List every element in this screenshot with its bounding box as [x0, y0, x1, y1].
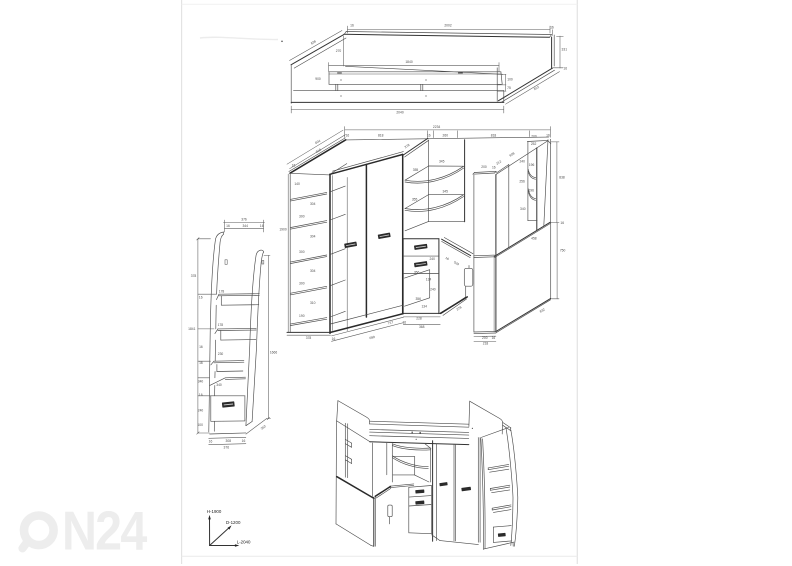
svg-text:378: 378 — [191, 274, 197, 278]
svg-text:100: 100 — [507, 78, 513, 82]
svg-text:838: 838 — [559, 176, 565, 180]
svg-text:1666: 1666 — [270, 350, 278, 354]
svg-text:16: 16 — [402, 320, 406, 324]
svg-text:376: 376 — [224, 445, 230, 449]
svg-text:240: 240 — [519, 159, 525, 163]
svg-text:256: 256 — [519, 180, 525, 184]
svg-text:100: 100 — [197, 423, 203, 427]
svg-text:178: 178 — [219, 289, 225, 293]
svg-text:H-1900: H-1900 — [207, 509, 222, 514]
svg-text:356: 356 — [415, 297, 421, 301]
svg-text:16: 16 — [350, 23, 354, 27]
svg-text:1840: 1840 — [405, 60, 413, 64]
svg-text:344: 344 — [242, 224, 248, 228]
svg-text:304: 304 — [310, 234, 316, 238]
svg-text:378: 378 — [306, 336, 312, 340]
svg-text:228: 228 — [416, 317, 422, 321]
svg-text:218: 218 — [483, 342, 489, 346]
svg-text:196: 196 — [528, 189, 534, 193]
svg-text:818: 818 — [491, 133, 497, 137]
svg-text:16: 16 — [209, 439, 213, 443]
svg-text:750: 750 — [560, 249, 566, 253]
svg-text:190: 190 — [299, 314, 305, 318]
svg-text:1900: 1900 — [279, 227, 287, 231]
svg-text:300: 300 — [299, 281, 305, 285]
svg-text:331: 331 — [562, 48, 568, 52]
svg-text:308: 308 — [226, 439, 232, 443]
svg-text:252: 252 — [531, 142, 537, 146]
svg-text:D-1200: D-1200 — [226, 520, 241, 525]
svg-text:140: 140 — [294, 182, 300, 186]
svg-text:16: 16 — [560, 221, 564, 225]
svg-text:200: 200 — [531, 135, 537, 139]
svg-text:134: 134 — [421, 304, 427, 308]
svg-text:178: 178 — [218, 323, 224, 327]
svg-text:16: 16 — [199, 345, 203, 349]
svg-text:75: 75 — [507, 86, 511, 90]
svg-text:240: 240 — [430, 288, 436, 292]
svg-text:300: 300 — [299, 250, 305, 254]
svg-text:260: 260 — [443, 133, 449, 137]
svg-text:310: 310 — [310, 301, 316, 305]
svg-text:340: 340 — [216, 383, 222, 387]
svg-text:134: 134 — [426, 277, 432, 281]
svg-text:200: 200 — [482, 336, 488, 340]
svg-text:900: 900 — [315, 77, 321, 81]
svg-text:355: 355 — [412, 197, 418, 201]
svg-text:16: 16 — [292, 164, 296, 168]
svg-text:355: 355 — [413, 168, 419, 172]
svg-text:368: 368 — [419, 325, 425, 329]
svg-text:L-2040: L-2040 — [237, 539, 251, 544]
svg-text:200: 200 — [481, 165, 487, 169]
svg-text:2040: 2040 — [396, 111, 404, 115]
svg-text:16: 16 — [346, 133, 350, 137]
svg-text:345: 345 — [442, 189, 448, 193]
svg-text:356: 356 — [414, 270, 420, 274]
svg-text:196: 196 — [529, 163, 535, 167]
svg-text:16: 16 — [260, 224, 264, 228]
svg-text:376: 376 — [241, 218, 247, 222]
svg-text:340: 340 — [520, 207, 526, 211]
svg-text:16: 16 — [199, 393, 203, 397]
svg-text:270: 270 — [336, 49, 342, 53]
svg-text:16: 16 — [226, 224, 230, 228]
svg-text:230: 230 — [218, 352, 224, 356]
svg-text:1841: 1841 — [188, 327, 196, 331]
svg-text:818: 818 — [378, 134, 384, 138]
svg-text:304: 304 — [310, 269, 316, 273]
svg-text:16: 16 — [550, 25, 554, 29]
svg-text:300: 300 — [299, 215, 305, 219]
svg-text:304: 304 — [310, 202, 316, 206]
svg-text:16: 16 — [492, 336, 496, 340]
svg-text:16: 16 — [242, 439, 246, 443]
svg-text:16: 16 — [563, 67, 567, 71]
svg-text:2002: 2002 — [444, 23, 452, 27]
svg-text:345: 345 — [439, 160, 445, 164]
svg-text:16: 16 — [332, 337, 336, 341]
svg-text:2234: 2234 — [433, 125, 441, 129]
svg-text:16: 16 — [492, 166, 496, 170]
svg-text:N24: N24 — [62, 499, 147, 561]
svg-text:458: 458 — [531, 237, 537, 241]
svg-text:240: 240 — [198, 409, 204, 413]
svg-text:340: 340 — [198, 380, 204, 384]
svg-text:240: 240 — [429, 257, 435, 261]
svg-text:16: 16 — [427, 133, 431, 137]
svg-text:16: 16 — [199, 361, 203, 365]
svg-text:16: 16 — [199, 296, 203, 300]
